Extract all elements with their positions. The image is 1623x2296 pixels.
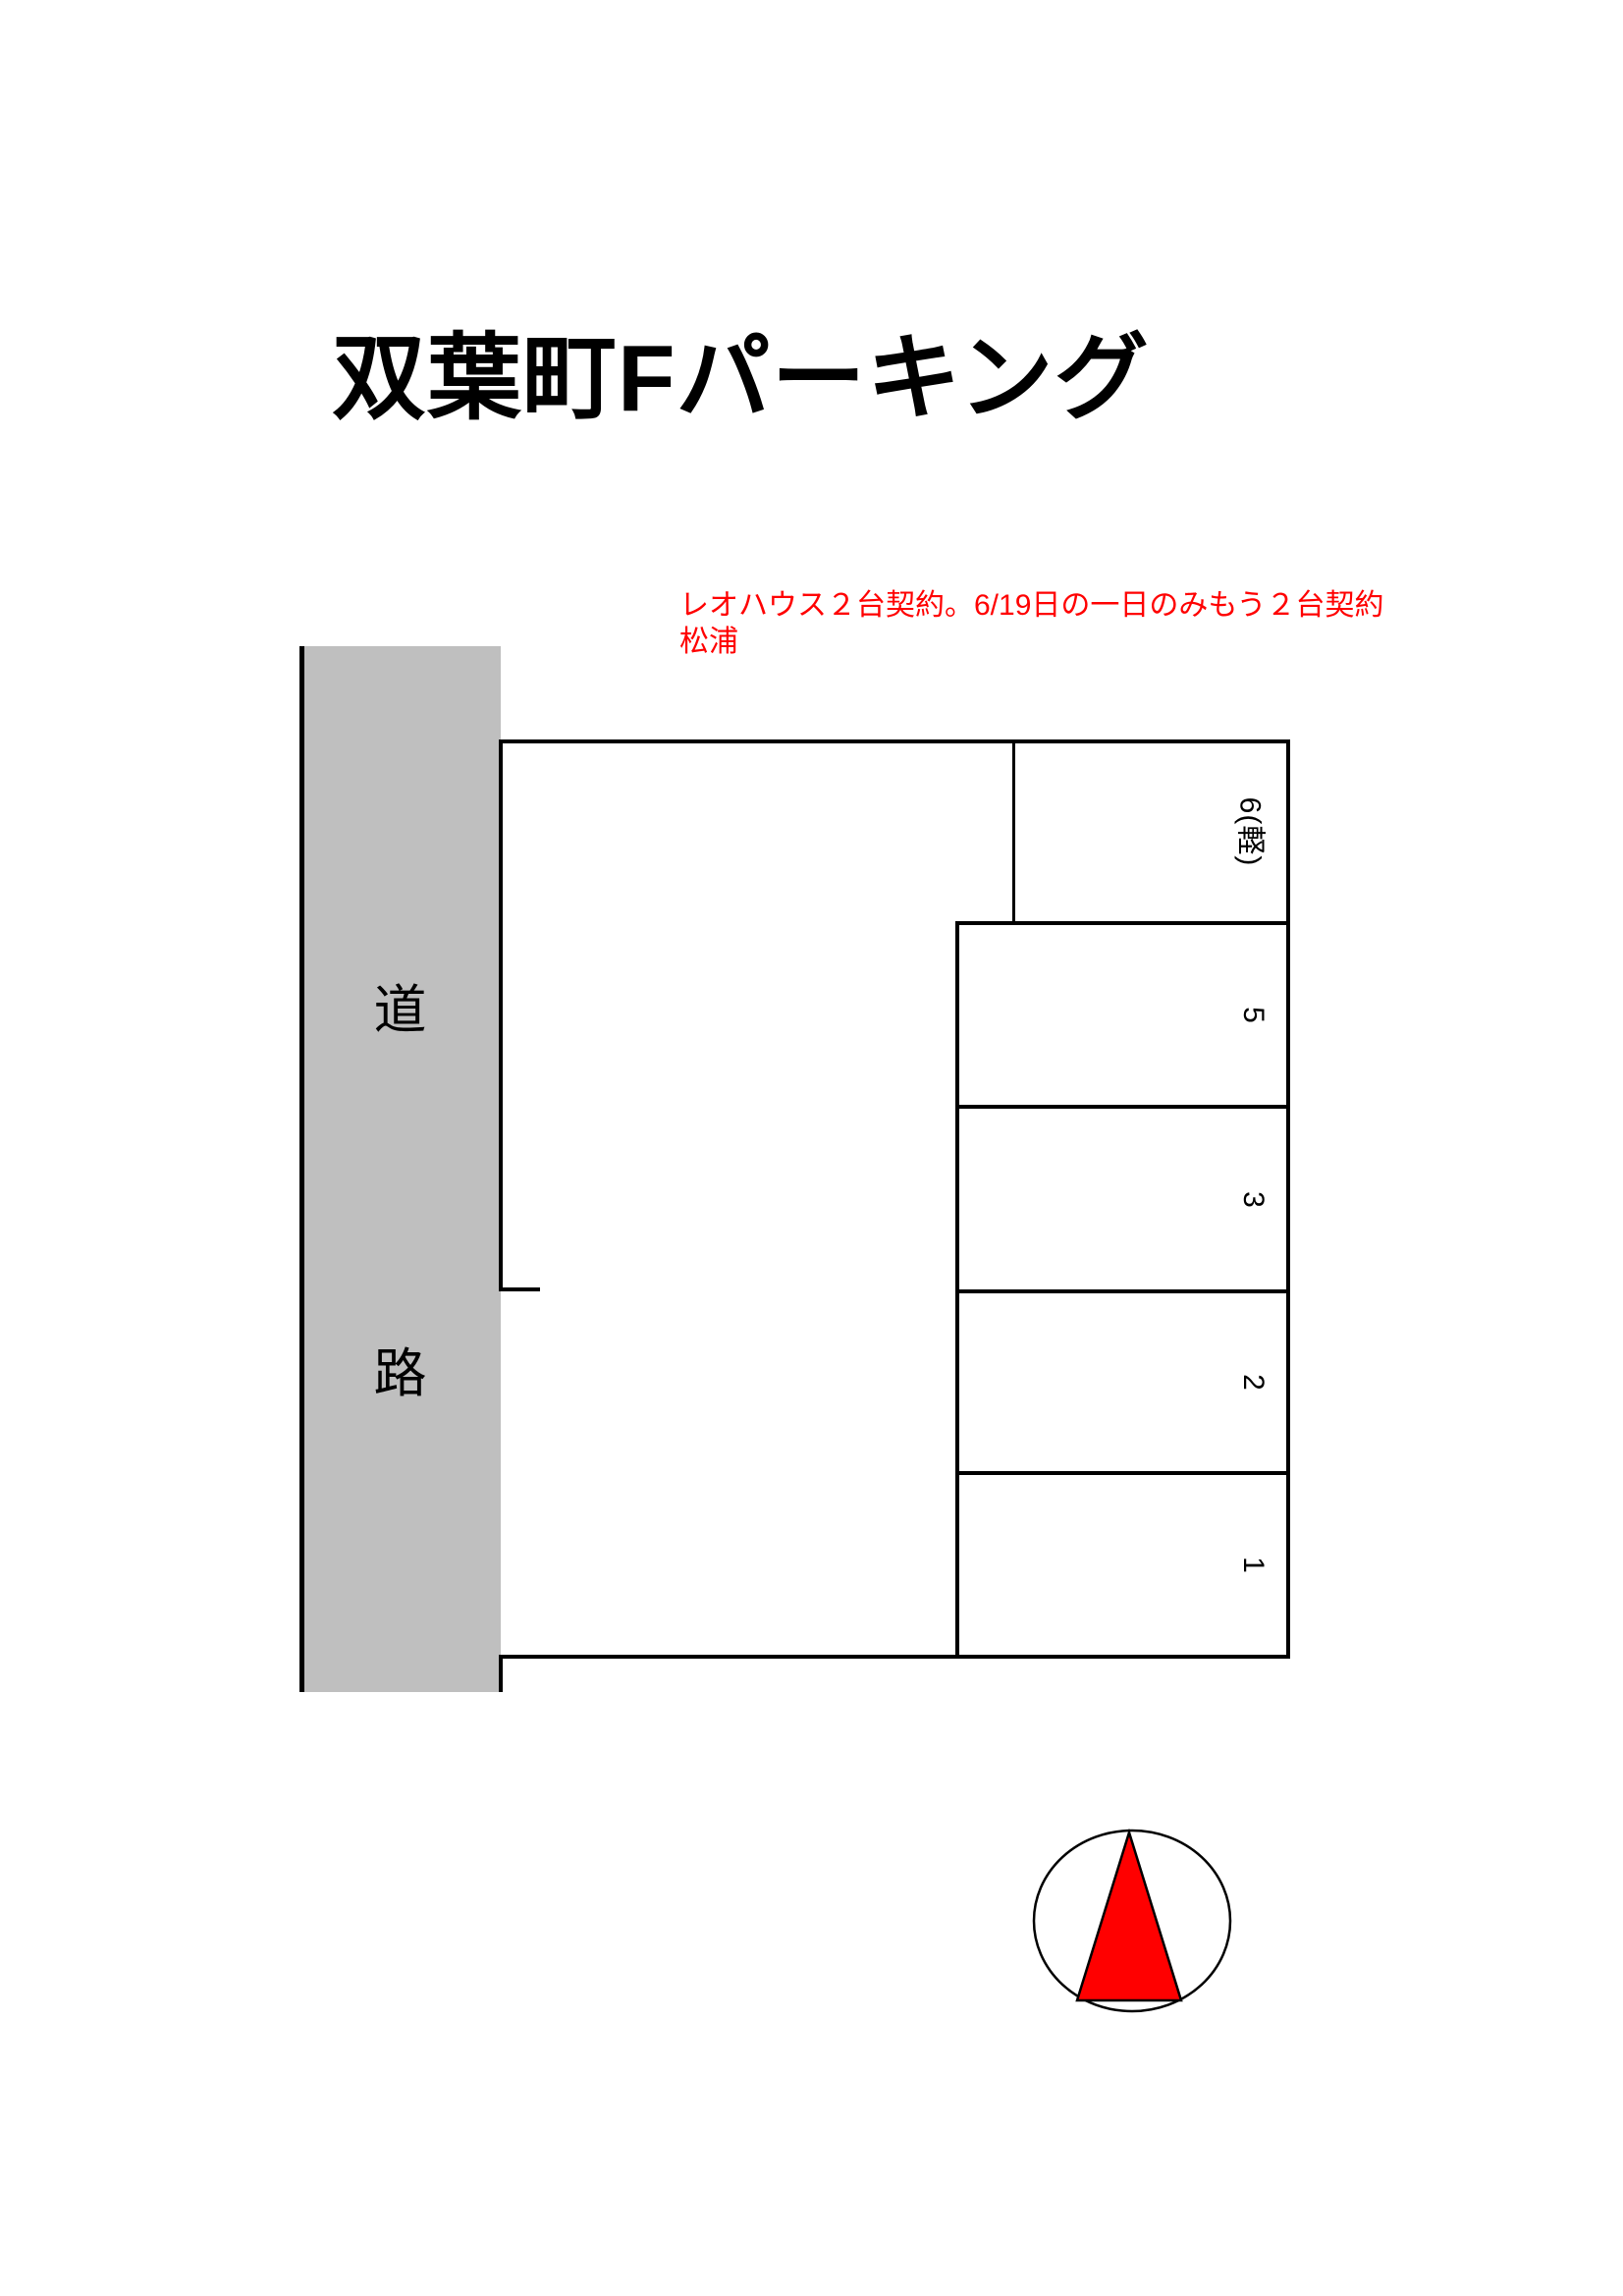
parking-space-2: 2 — [1217, 1293, 1288, 1472]
space-6-left-line — [1012, 739, 1015, 925]
north-arrow-icon — [1021, 1820, 1243, 2016]
parking-space-5: 5 — [1217, 925, 1288, 1106]
parking-space-6-label: 6(軽) — [1231, 797, 1274, 867]
parking-space-3: 3 — [1217, 1109, 1288, 1290]
lot-border-bottom — [499, 1655, 1290, 1659]
road-label-top: 道 — [299, 984, 501, 1037]
annotation-note: レオハウス２台契約。6/19日の一日のみもう２台契約 松浦 — [679, 587, 1384, 660]
annotation-note-line2: 松浦 — [679, 624, 1384, 660]
annotation-note-line1: レオハウス２台契約。6/19日の一日のみもう２台契約 — [679, 587, 1384, 624]
parking-space-3-label: 3 — [1236, 1191, 1270, 1209]
parking-space-2-label: 2 — [1236, 1374, 1270, 1392]
parking-space-6-kei: 6(軽) — [1217, 741, 1288, 922]
parking-space-1: 1 — [1217, 1475, 1288, 1656]
lot-boundary-tick — [499, 1287, 540, 1291]
page-title: 双葉町Fパーキング — [332, 322, 1150, 435]
parking-map-page: 双葉町Fパーキング レオハウス２台契約。6/19日の一日のみもう２台契約 松浦 … — [0, 0, 1623, 2296]
parking-space-5-label: 5 — [1236, 1007, 1270, 1024]
road-label-bottom: 路 — [299, 1347, 501, 1400]
road-strip — [299, 646, 501, 1692]
parking-space-1-label: 1 — [1236, 1557, 1270, 1574]
lot-border-top — [499, 739, 1290, 743]
lot-border-left-stub — [499, 1655, 503, 1692]
lot-border-left-upper — [499, 739, 503, 1291]
